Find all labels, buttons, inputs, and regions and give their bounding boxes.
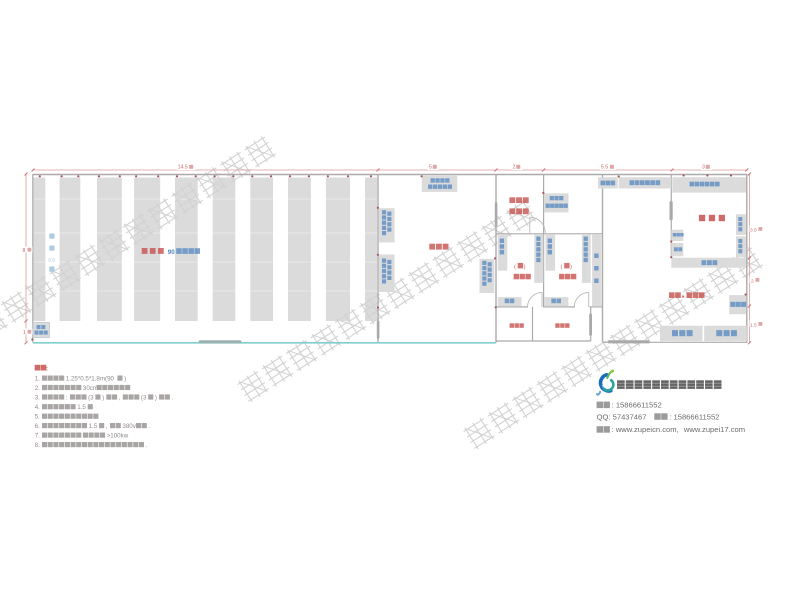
svg-text:3.: 3. <box>35 395 40 402</box>
svg-text:): ) <box>102 395 104 402</box>
svg-text:,: , <box>106 423 108 430</box>
svg-text:www.zupei17.com: www.zupei17.com <box>683 425 745 434</box>
svg-text:3: 3 <box>702 165 705 171</box>
svg-text:.: . <box>172 395 174 402</box>
svg-text:1.25*0.5*1.8m(90: 1.25*0.5*1.8m(90 <box>66 376 115 383</box>
svg-text:>100kw: >100kw <box>107 433 129 440</box>
svg-text::: : <box>66 395 68 402</box>
svg-text:: www.zupeicn.com,: : www.zupeicn.com, <box>612 425 679 434</box>
svg-text:): ) <box>155 395 157 402</box>
svg-text::: : <box>46 366 48 372</box>
svg-text:5: 5 <box>429 165 432 171</box>
svg-text:5.5: 5.5 <box>601 165 608 171</box>
svg-text:): ) <box>570 264 572 270</box>
svg-text:380v: 380v <box>122 423 136 430</box>
svg-text:3.5: 3.5 <box>750 227 757 233</box>
svg-text:1.5: 1.5 <box>89 423 98 430</box>
svg-text:: 15866611552: : 15866611552 <box>669 412 719 421</box>
svg-text:.: . <box>146 442 148 449</box>
svg-text:30cm: 30cm <box>83 385 98 392</box>
svg-text:,: , <box>119 395 121 402</box>
svg-text:2: 2 <box>751 278 754 284</box>
svg-text:2: 2 <box>513 165 516 171</box>
svg-text:8.: 8. <box>35 442 40 449</box>
svg-text:: 15866611552: : 15866611552 <box>612 401 662 410</box>
svg-text:90: 90 <box>168 249 175 256</box>
svg-text:): ) <box>124 376 126 383</box>
svg-text:QQ: 57437467: QQ: 57437467 <box>597 412 647 421</box>
svg-text:1.: 1. <box>35 376 40 383</box>
svg-text:6.: 6. <box>35 423 40 430</box>
svg-text:5.: 5. <box>35 414 40 421</box>
svg-text:8: 8 <box>23 248 26 254</box>
svg-text:1: 1 <box>23 330 26 336</box>
svg-text:(3: (3 <box>141 395 147 402</box>
svg-text:): ) <box>524 264 526 270</box>
svg-text:1.5: 1.5 <box>750 322 757 328</box>
svg-text:4.: 4. <box>35 404 40 411</box>
svg-text:1.5: 1.5 <box>77 404 86 411</box>
svg-text:(3: (3 <box>88 395 94 402</box>
svg-text:7.: 7. <box>35 433 40 440</box>
svg-text:.: . <box>148 423 150 430</box>
svg-text:14.5: 14.5 <box>178 165 188 171</box>
svg-text:2.: 2. <box>35 385 40 392</box>
svg-text:(: ( <box>561 264 563 270</box>
svg-text:0.6: 0.6 <box>48 258 55 264</box>
svg-text:TH: TH <box>602 384 608 389</box>
svg-text:(: ( <box>514 264 516 270</box>
